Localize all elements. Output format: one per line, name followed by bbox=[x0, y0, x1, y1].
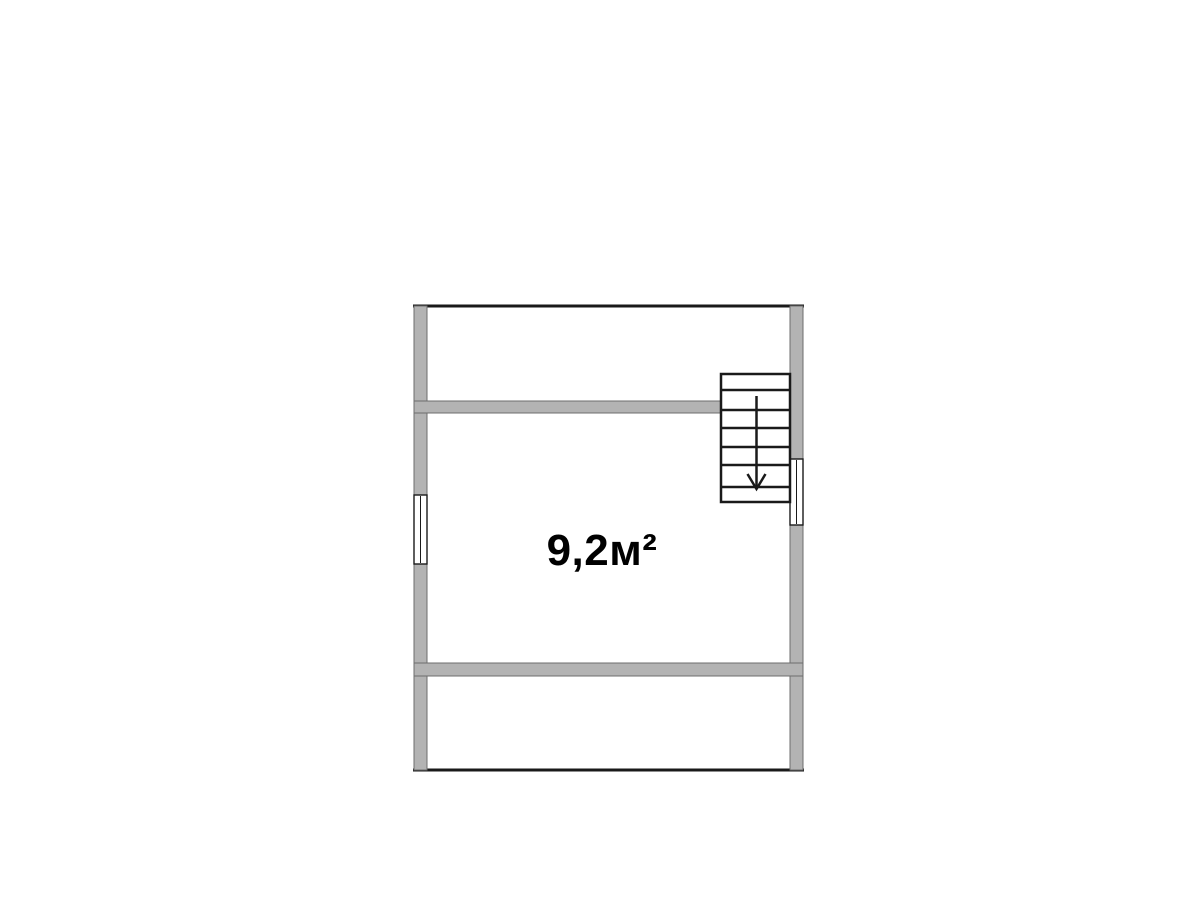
staircase bbox=[721, 374, 790, 502]
floor-plan-page: 9,2м² bbox=[0, 0, 1200, 900]
exterior-wall-right-lower bbox=[790, 525, 803, 770]
interior-wall-lower bbox=[414, 663, 803, 676]
floor-plan: 9,2м² bbox=[0, 0, 1200, 900]
window-left bbox=[414, 495, 427, 564]
window-right bbox=[790, 459, 803, 525]
room-area-label: 9,2м² bbox=[547, 526, 658, 575]
interior-wall-upper bbox=[414, 401, 721, 413]
exterior-wall-right-upper bbox=[790, 306, 803, 459]
